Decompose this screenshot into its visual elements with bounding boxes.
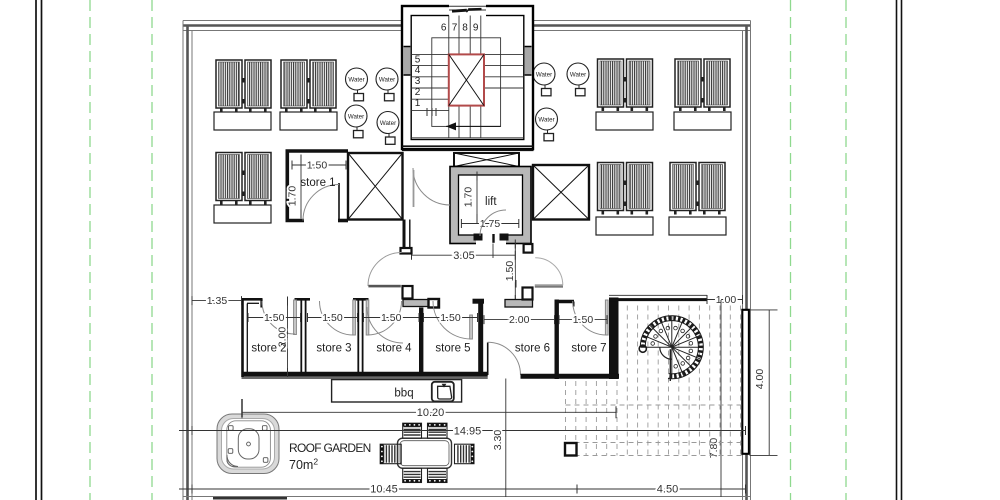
svg-text:9: 9 [473, 23, 479, 34]
svg-text:5: 5 [415, 55, 421, 66]
svg-text:ROOF GARDEN: ROOF GARDEN [289, 441, 371, 455]
svg-text:2: 2 [415, 87, 421, 98]
svg-text:1.50: 1.50 [307, 160, 328, 172]
svg-text:14.95: 14.95 [454, 425, 482, 437]
svg-text:Water: Water [536, 72, 552, 79]
svg-text:2.00: 2.00 [509, 314, 530, 326]
svg-text:Water: Water [570, 72, 586, 79]
svg-text:3.05: 3.05 [453, 250, 474, 262]
svg-text:7: 7 [452, 23, 458, 34]
svg-text:1: 1 [415, 98, 421, 109]
svg-text:store 3: store 3 [316, 343, 351, 355]
svg-text:1.50: 1.50 [573, 314, 594, 326]
svg-text:Water: Water [348, 77, 364, 84]
svg-text:lift: lift [485, 196, 497, 208]
svg-text:8: 8 [462, 23, 468, 34]
svg-text:4: 4 [415, 65, 421, 76]
svg-text:Water: Water [379, 77, 395, 84]
svg-text:3: 3 [415, 76, 421, 87]
svg-text:1.70: 1.70 [287, 186, 299, 207]
svg-text:10.20: 10.20 [417, 407, 445, 419]
svg-text:1.35: 1.35 [207, 295, 228, 307]
svg-text:6: 6 [441, 23, 447, 34]
svg-text:Water: Water [538, 117, 554, 124]
svg-text:store 2: store 2 [251, 343, 286, 355]
svg-text:1.50: 1.50 [504, 261, 516, 282]
svg-text:1.50: 1.50 [264, 312, 285, 324]
svg-text:1.70: 1.70 [463, 187, 475, 208]
svg-text:store 5: store 5 [435, 343, 470, 355]
svg-text:10.45: 10.45 [370, 484, 398, 496]
svg-text:store 1: store 1 [300, 177, 335, 189]
svg-text:store 7: store 7 [571, 343, 606, 355]
svg-text:1.50: 1.50 [322, 312, 343, 324]
svg-text:Water: Water [348, 114, 364, 121]
svg-text:3.30: 3.30 [492, 430, 504, 451]
svg-text:1.00: 1.00 [716, 294, 737, 306]
svg-text:4.50: 4.50 [657, 484, 678, 496]
svg-text:1.50: 1.50 [440, 312, 461, 324]
svg-text:store 4: store 4 [376, 343, 412, 355]
svg-text:Water: Water [380, 120, 396, 127]
svg-text:4.00: 4.00 [754, 369, 766, 390]
svg-text:store 6: store 6 [515, 343, 550, 355]
svg-text:bbq: bbq [394, 388, 413, 400]
svg-text:1.50: 1.50 [381, 312, 402, 324]
